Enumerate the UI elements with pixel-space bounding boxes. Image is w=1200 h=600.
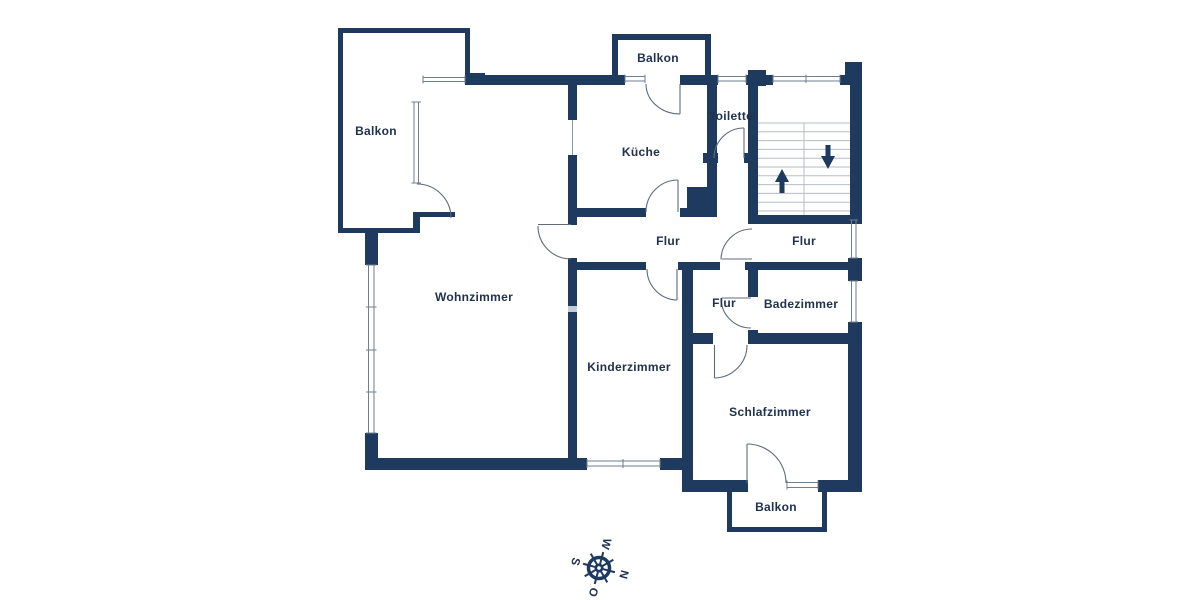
wall — [748, 86, 758, 223]
door-kueche — [646, 180, 678, 212]
wall — [848, 258, 862, 281]
door-bedroom-balcony — [747, 444, 786, 483]
balcony-wall — [338, 28, 343, 233]
room-label-wohnzimmer: Wohnzimmer — [435, 290, 513, 304]
wall — [365, 433, 378, 458]
wall — [682, 262, 693, 492]
stair-steps — [758, 123, 850, 215]
window — [850, 220, 859, 258]
staircase — [758, 123, 850, 215]
window — [587, 459, 660, 468]
wall — [577, 208, 646, 217]
stairs-up-arrow-icon — [775, 169, 789, 193]
room-labels: Balkon Balkon Küche Toilette Flur Flur F… — [355, 51, 838, 514]
window — [625, 75, 645, 84]
room-label-flur-main: Flur — [656, 234, 680, 248]
window — [423, 76, 465, 84]
door-kinderzimmer — [647, 269, 677, 300]
compass-rose-icon: N O S W — [561, 530, 636, 600]
wall — [365, 458, 587, 470]
balcony-wall — [465, 28, 470, 75]
room-label-balkon-top-left: Balkon — [355, 124, 397, 138]
window — [718, 75, 746, 84]
door-apartment-entrance — [721, 229, 752, 260]
room-label-flur-stairwell: Flur — [792, 234, 816, 248]
window — [850, 281, 859, 322]
wall — [568, 258, 577, 458]
wall — [365, 233, 378, 265]
room-label-balkon-bottom: Balkon — [755, 500, 797, 514]
door-wohnzimmer — [538, 225, 571, 260]
balcony-wall — [727, 487, 732, 532]
room-label-flur-small: Flur — [712, 296, 736, 310]
room-label-badezimmer: Badezimmer — [764, 297, 838, 311]
wall — [707, 85, 717, 217]
balcony-wall — [727, 527, 827, 532]
wall — [692, 333, 713, 344]
wall — [748, 215, 862, 224]
wall — [758, 262, 850, 270]
door-toilette — [714, 128, 744, 158]
chimney-shaft — [687, 187, 708, 210]
room-label-kinderzimmer: Kinderzimmer — [587, 360, 671, 374]
compass-east-label: O — [586, 586, 600, 598]
window — [412, 102, 422, 183]
compass-south-label: S — [568, 556, 582, 567]
doors — [417, 84, 786, 483]
wall — [568, 83, 577, 120]
balcony-wall — [413, 212, 455, 217]
balcony-wall — [705, 34, 711, 85]
wall — [850, 85, 862, 217]
wall — [703, 153, 718, 163]
compass-west-label: W — [598, 537, 612, 551]
wall — [577, 262, 646, 270]
compass-north-label: N — [616, 569, 630, 580]
window — [366, 265, 377, 433]
wall — [710, 75, 718, 85]
room-label-kueche: Küche — [622, 145, 660, 159]
apartment-walls — [365, 62, 862, 492]
wall — [465, 75, 613, 85]
wall — [748, 262, 758, 297]
balcony-wall — [612, 34, 711, 40]
door-schlafzimmer — [715, 345, 748, 378]
floor-plan: Balkon Balkon Küche Toilette Flur Flur F… — [0, 0, 1200, 600]
room-label-balkon-top: Balkon — [637, 51, 679, 65]
door-kitchen-balcony — [646, 84, 680, 114]
wall — [693, 480, 748, 492]
balcony-wall — [612, 34, 618, 85]
room-label-schlafzimmer: Schlafzimmer — [729, 405, 811, 419]
wall-light-band — [568, 306, 577, 312]
window — [773, 75, 840, 84]
wall — [568, 155, 577, 225]
floor-plan-canvas: Balkon Balkon Küche Toilette Flur Flur F… — [0, 0, 1200, 600]
windows — [366, 75, 858, 490]
room-label-toilette: Toilette — [709, 109, 753, 123]
balcony-wall — [338, 28, 470, 33]
balcony-wall — [822, 487, 827, 532]
wall — [845, 62, 862, 85]
window — [787, 481, 818, 490]
wall — [848, 322, 862, 492]
wall — [748, 70, 766, 86]
stairs-down-arrow-icon — [821, 145, 835, 169]
balcony-wall — [338, 228, 420, 233]
wall — [748, 333, 862, 344]
